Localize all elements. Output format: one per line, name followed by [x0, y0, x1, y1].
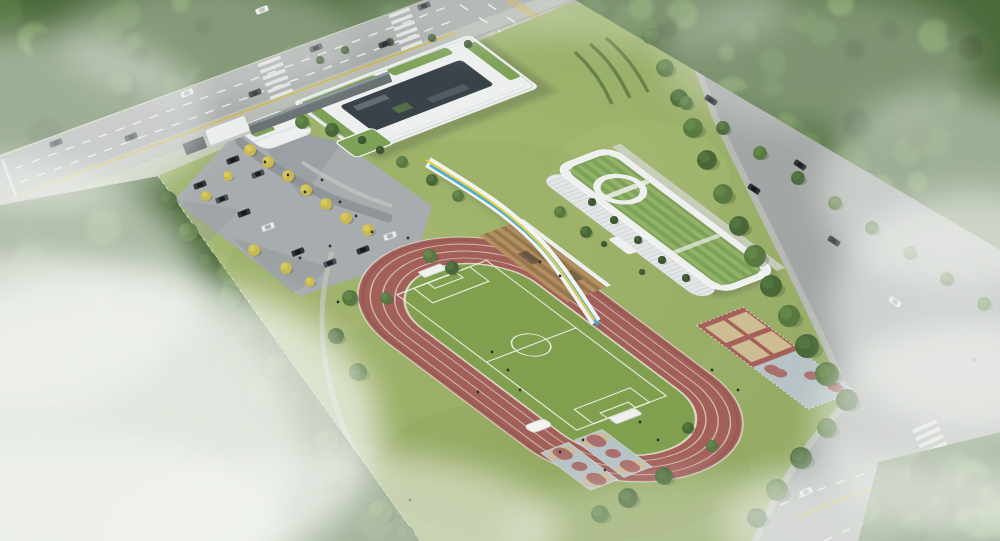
person	[264, 161, 267, 164]
person	[355, 215, 358, 218]
person	[559, 451, 562, 454]
person	[559, 275, 562, 278]
scene-svg	[0, 0, 1000, 541]
person	[299, 257, 302, 260]
person	[287, 174, 290, 177]
person	[507, 369, 510, 372]
person	[519, 389, 522, 392]
person	[582, 439, 585, 442]
person	[639, 421, 642, 424]
person	[321, 179, 324, 182]
person	[337, 301, 340, 304]
person	[407, 237, 410, 240]
person	[371, 231, 374, 234]
person	[657, 439, 660, 442]
person	[604, 469, 607, 472]
person	[737, 389, 740, 392]
campus-aerial-render	[0, 0, 1000, 541]
person	[539, 261, 542, 264]
person	[711, 369, 714, 372]
person	[491, 351, 494, 354]
person	[477, 391, 480, 394]
person	[339, 201, 342, 204]
person	[329, 245, 332, 248]
person	[304, 191, 307, 194]
